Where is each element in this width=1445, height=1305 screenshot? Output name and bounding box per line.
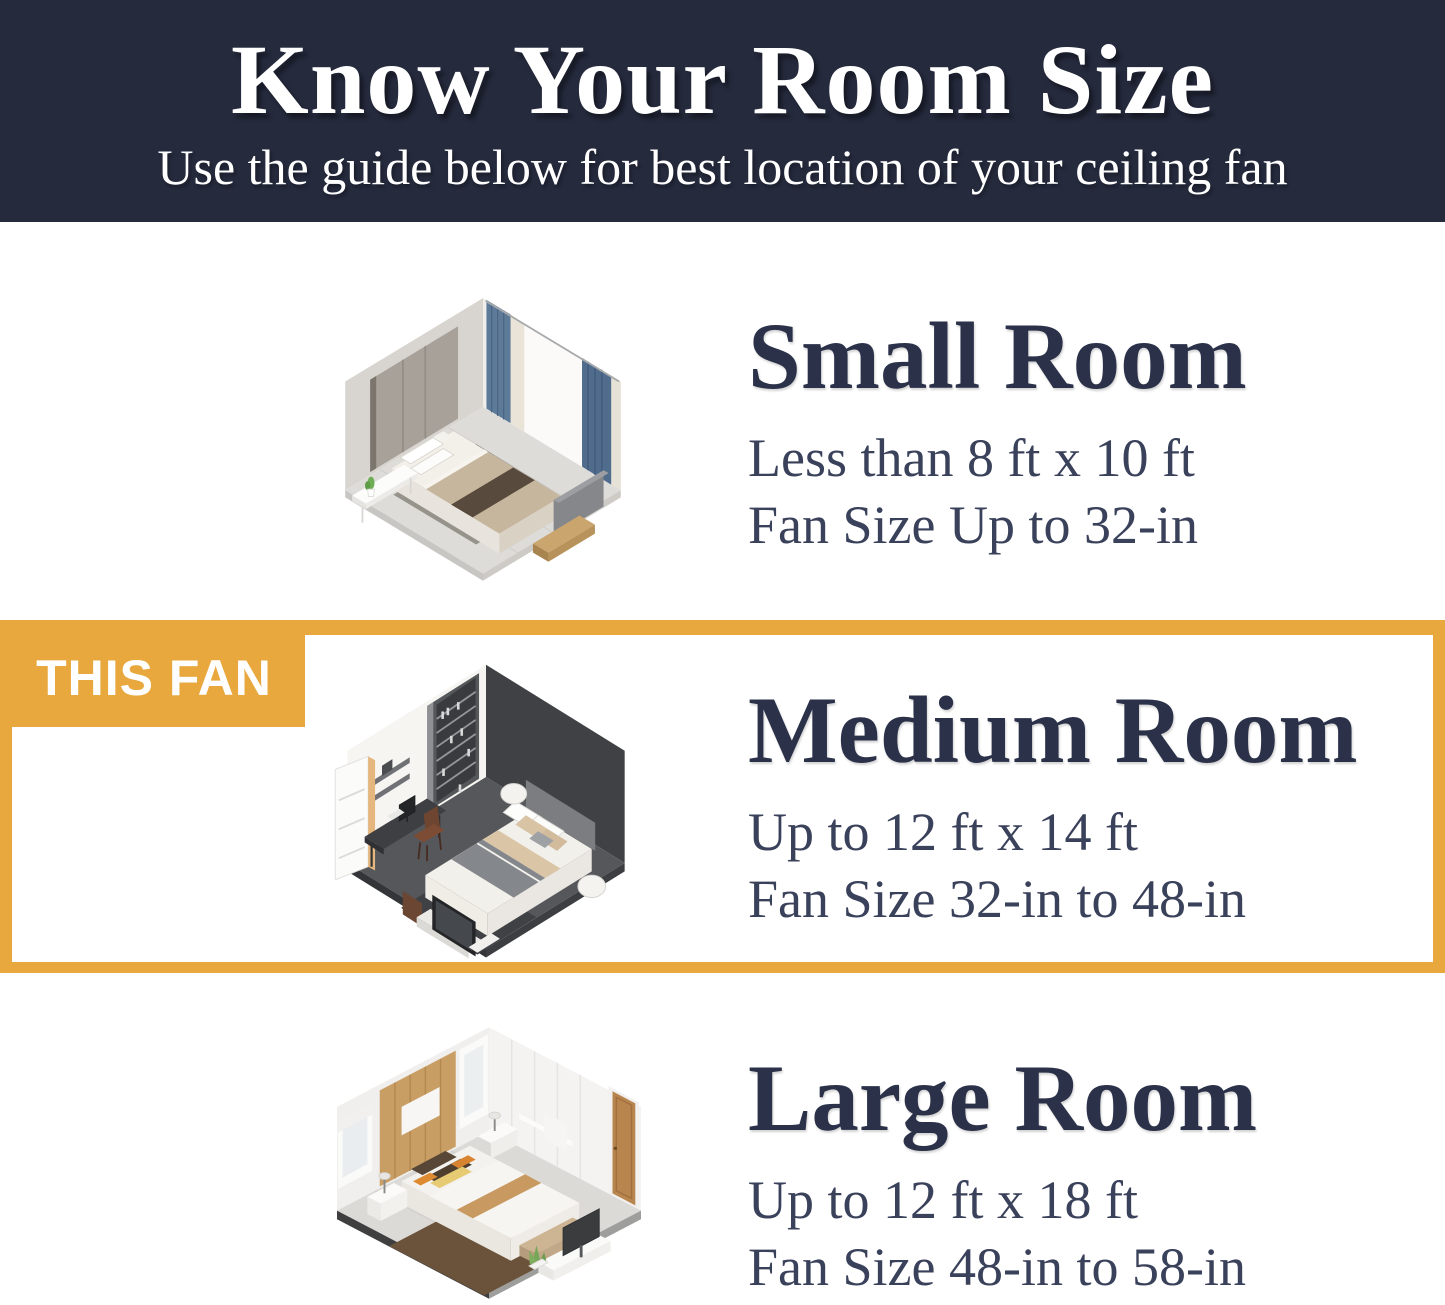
header-banner: Know Your Room Size Use the guide below … <box>0 0 1445 222</box>
this-fan-label: THIS FAN <box>36 641 272 707</box>
this-fan-badge: THIS FAN <box>3 620 305 727</box>
fan-size: Fan Size Up to 32-in <box>748 492 1247 560</box>
room-size-guide: Know Your Room Size Use the guide below … <box>0 0 1445 1305</box>
small-room-text: Small Room Less than 8 ft x 10 ft Fan Si… <box>748 308 1247 560</box>
room-dimensions: Less than 8 ft x 10 ft <box>748 425 1247 493</box>
fan-size: Fan Size 32-in to 48-in <box>748 866 1358 934</box>
dresser <box>335 756 375 879</box>
page-title: Know Your Room Size <box>231 30 1214 130</box>
room-title: Small Room <box>748 308 1247 405</box>
medium-room-text: Medium Room Up to 12 ft x 14 ft Fan Size… <box>748 682 1358 934</box>
window-corner <box>460 1034 489 1129</box>
small-room-illustration <box>328 280 638 588</box>
medium-room-illustration <box>330 646 642 964</box>
room-dimensions: Up to 12 ft x 14 ft <box>748 799 1358 867</box>
large-room-text: Large Room Up to 12 ft x 18 ft Fan Size … <box>748 1050 1257 1302</box>
room-dimensions: Up to 12 ft x 18 ft <box>748 1167 1257 1235</box>
room-title: Large Room <box>748 1050 1257 1147</box>
room-title: Medium Room <box>748 682 1358 779</box>
large-room-illustration <box>318 1010 660 1304</box>
fan-size: Fan Size 48-in to 58-in <box>748 1234 1257 1302</box>
page-subtitle: Use the guide below for best location of… <box>157 142 1287 192</box>
